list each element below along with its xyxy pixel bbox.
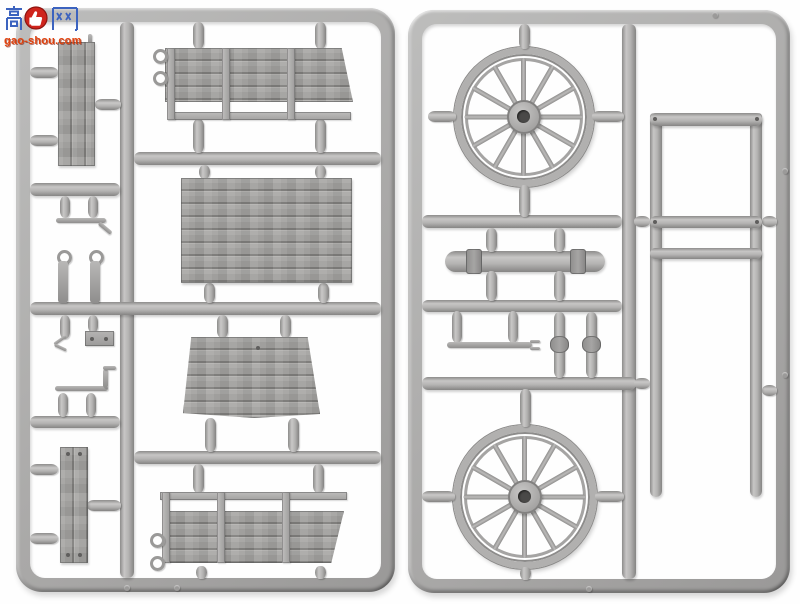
sprue-gate (30, 464, 58, 475)
sprue-gate (508, 311, 518, 343)
sprue-gate (60, 315, 70, 339)
sprue-gate (95, 99, 121, 110)
sprue-gate (88, 196, 98, 218)
sprue-gate (762, 216, 777, 227)
watermark-url: gao-shou.com (4, 35, 82, 47)
tie-down-eyelet (150, 556, 165, 571)
sprue-b-runner-r2 (422, 300, 622, 312)
sprue-gate (30, 533, 58, 544)
upper-side-panel-batten (167, 48, 175, 120)
rack-rivet-hole (653, 220, 657, 224)
axle-strap-band (570, 249, 586, 274)
sprue-gate (315, 22, 326, 49)
sprue-gate (318, 283, 329, 303)
bolt-plate-hole (90, 337, 94, 341)
sprue-gate (204, 283, 215, 303)
lower-side-panel-batten (282, 492, 290, 563)
ring-pin-shaft (58, 261, 68, 303)
wheel-hub-hole (517, 110, 530, 123)
rack-frame-rail (750, 113, 762, 497)
sprue-gate (428, 111, 456, 122)
rack-frame-crossbar (650, 248, 762, 259)
sprue-gate (217, 315, 228, 338)
watermark: gao-shou.com (4, 5, 82, 47)
rack-rivet-hole (755, 117, 759, 121)
footboard-rod-tip (103, 366, 116, 370)
sprue-a-runner-h1-left (30, 183, 120, 196)
sprue-gate (520, 567, 531, 580)
sprue-gate (315, 119, 326, 153)
moulding-nub (124, 585, 130, 591)
spoked-wheel-upper (454, 47, 594, 187)
upper-side-panel-batten (287, 48, 295, 120)
sprue-gate (422, 491, 455, 502)
ring-pin-shaft (90, 261, 100, 303)
cargo-floor-panel (181, 178, 352, 283)
rack-rivet-hole (755, 220, 759, 224)
sprue-gate (519, 24, 530, 49)
axle-strap-band (466, 249, 482, 274)
sprue-gate (315, 566, 326, 579)
tie-rod-fork (530, 347, 540, 350)
sprue-gate (762, 385, 777, 396)
sprue-gate (199, 165, 210, 179)
sprue-a-runner-vertical (120, 22, 134, 578)
sprue-a-runner-h1 (134, 152, 381, 165)
sprue-gate (554, 271, 565, 301)
sprue-gate (520, 389, 531, 427)
rack-frame-rail (650, 113, 662, 497)
rivet-dot (78, 553, 82, 557)
tie-down-eyelet (153, 49, 168, 64)
rack-rivet-hole (653, 117, 657, 121)
sprue-gate (595, 491, 624, 502)
upper-side-panel-batten (222, 48, 230, 120)
cn-glyph-wang (53, 8, 77, 30)
sprue-gate (193, 22, 204, 49)
rack-frame-crossbar (650, 216, 762, 228)
sprue-a-runner-h2-left (30, 416, 120, 428)
watermark-logo-row (4, 5, 80, 32)
sprue-a-runner-h2 (30, 302, 381, 315)
bolt-pin-collar (550, 336, 569, 353)
sprue-gate (193, 119, 204, 153)
moulding-nub (782, 372, 788, 378)
narrow-plank-panel (60, 447, 88, 563)
footboard-rod-riser (103, 369, 108, 388)
moulding-nub (174, 585, 180, 591)
side-door-panel (58, 42, 95, 166)
sprue-gate (280, 315, 291, 338)
cn-glyph-gao (6, 6, 22, 30)
rivet-dot (66, 553, 70, 557)
bolt-plate-hole (104, 337, 108, 341)
sprue-gate (196, 566, 207, 579)
front-board-peg-hole (256, 346, 260, 350)
sprue-gate (86, 393, 96, 417)
tie-down-eyelet (150, 533, 165, 548)
sprue-gate (87, 500, 121, 511)
sprue-gate (58, 393, 68, 417)
sprue-gate (315, 165, 326, 179)
moulding-nub (782, 168, 788, 174)
lower-side-panel-batten (162, 492, 170, 563)
sprue-gate (288, 418, 299, 452)
sprue-gate (592, 111, 624, 122)
footboard-rod (55, 386, 108, 391)
moulding-nub (586, 586, 592, 592)
sprue-gate (30, 135, 58, 146)
rack-frame-crossbar (650, 113, 762, 126)
sprue-gate (634, 378, 650, 389)
tie-rod (447, 342, 532, 348)
thumbs-up-icon (25, 7, 47, 29)
sprue-gate (486, 271, 497, 301)
moulding-nub (712, 12, 718, 18)
upper-side-panel-planks (165, 48, 353, 102)
upper-side-panel-bottom-rail (167, 112, 351, 120)
lower-side-panel-batten (217, 492, 225, 563)
sprue-b-runner-r1 (422, 215, 622, 228)
sprue-gate (554, 228, 565, 252)
sprue-b-runner-r3 (422, 377, 636, 390)
rivet-dot (78, 452, 82, 456)
tie-down-eyelet (153, 71, 168, 86)
sprue-gate (452, 311, 462, 343)
photo-stage: gao-shou.com (0, 0, 800, 604)
sprue-b-runner-vertical (622, 24, 636, 579)
tie-rod-fork (530, 340, 540, 343)
sprue-gate (313, 464, 324, 493)
spoked-wheel-lower (453, 425, 597, 569)
sprue-gate (634, 216, 650, 227)
rivet-dot (66, 452, 70, 456)
front-board-panel (183, 337, 320, 418)
lower-side-panel-planks (162, 511, 344, 563)
sprue-gate (486, 228, 497, 252)
lower-side-panel-top-rail (160, 492, 347, 500)
sprue-gate (30, 67, 58, 78)
sprue-gate (60, 196, 70, 218)
sprue-a-runner-h3 (134, 451, 381, 464)
sprue-gate (193, 464, 204, 493)
bolt-pin-collar (582, 336, 601, 353)
sprue-gate (205, 418, 216, 452)
wheel-hub-hole (518, 490, 531, 503)
sprue-gate (519, 185, 530, 217)
